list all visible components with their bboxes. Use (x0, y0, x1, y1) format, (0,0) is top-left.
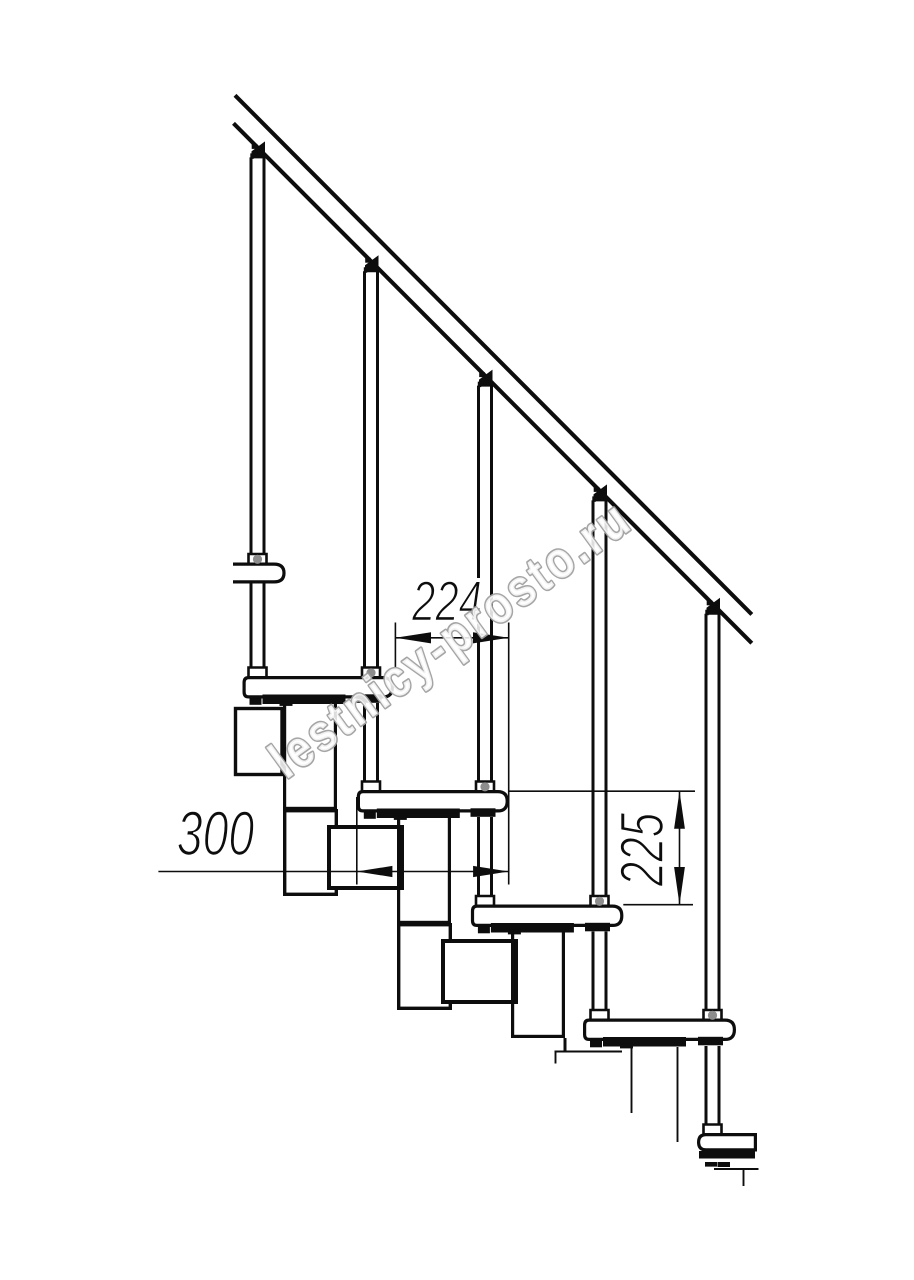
svg-text:225: 225 (608, 812, 676, 887)
svg-text:300: 300 (177, 799, 254, 869)
